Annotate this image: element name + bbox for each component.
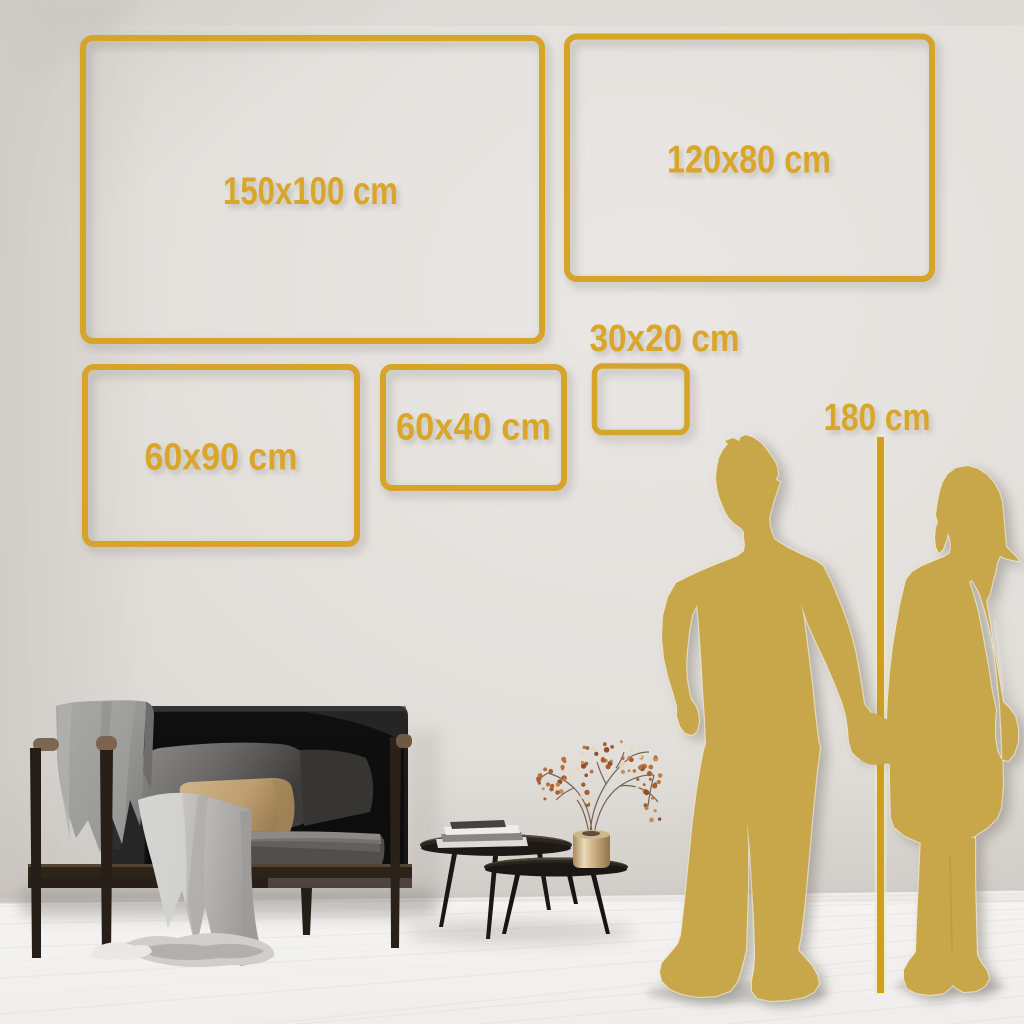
svg-text:180 cm: 180 cm: [824, 397, 931, 439]
svg-text:60x40 cm: 60x40 cm: [396, 407, 551, 449]
svg-text:120x80 cm: 120x80 cm: [667, 139, 831, 182]
svg-text:60x90 cm: 60x90 cm: [145, 437, 298, 479]
svg-text:30x20 cm: 30x20 cm: [590, 318, 740, 360]
svg-text:150x100 cm: 150x100 cm: [223, 170, 398, 213]
